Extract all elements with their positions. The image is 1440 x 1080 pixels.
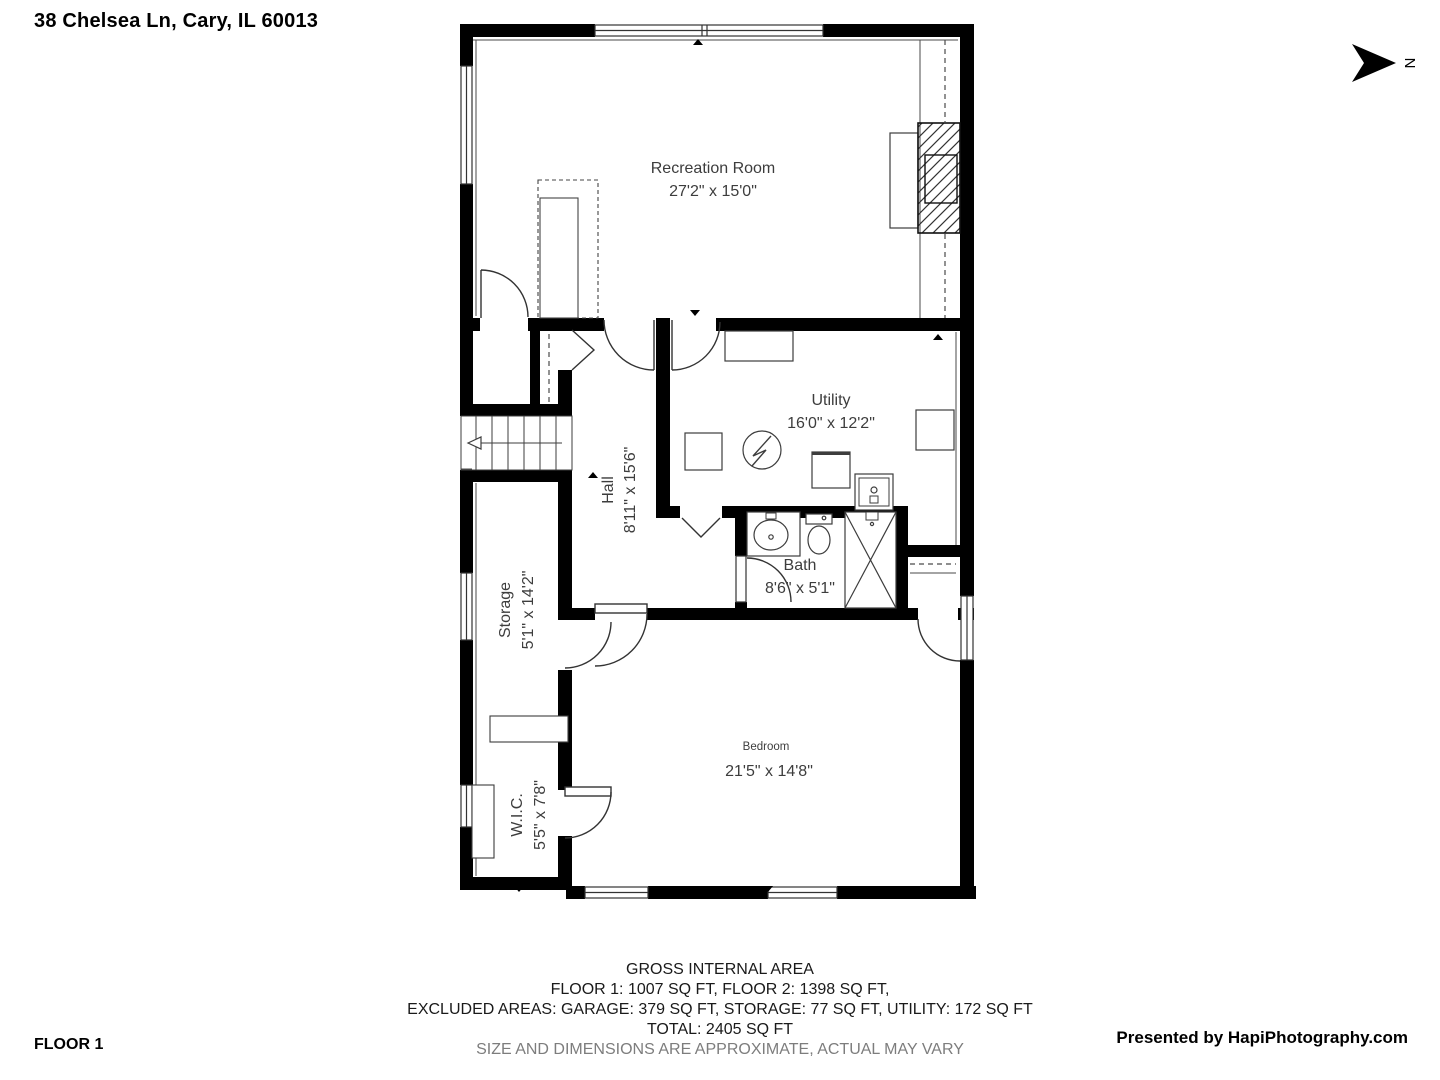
storage-shelf xyxy=(490,716,568,742)
water-heater-icon xyxy=(743,431,781,469)
freezer xyxy=(916,410,954,450)
floorplan-page: { "header": { "address": "38 Chelsea Ln,… xyxy=(0,0,1440,1080)
storage-label: Storage xyxy=(497,582,514,638)
utility-label: Utility xyxy=(811,392,850,409)
fireplace xyxy=(890,123,960,233)
laundry-sink-icon xyxy=(855,474,893,510)
wic-dims: 5'5" x 7'8" xyxy=(532,780,549,850)
toilet-icon xyxy=(806,514,832,554)
excluded-areas: EXCLUDED AREAS: GARAGE: 379 SQ FT, STORA… xyxy=(0,1000,1440,1020)
recreation-room-label: Recreation Room xyxy=(651,160,776,177)
floorplan-svg: Recreation Room 27'2" x 15'0" Utility 16… xyxy=(0,0,1440,1080)
sink-vanity-icon xyxy=(747,512,800,556)
stairs xyxy=(461,416,572,470)
washer-icon xyxy=(812,452,850,488)
shower-icon xyxy=(845,512,896,608)
counter xyxy=(725,331,793,361)
bedroom-label: Bedroom xyxy=(743,741,790,753)
hall-dims: 8'11" x 15'6" xyxy=(622,447,639,534)
utility-dims: 16'0" x 12'2" xyxy=(787,415,875,432)
storage-dims: 5'1" x 14'2" xyxy=(520,571,537,650)
gross-area-title: GROSS INTERNAL AREA xyxy=(0,960,1440,980)
bedroom-dims: 21'5" x 14'8" xyxy=(725,763,813,780)
recreation-room-dims: 27'2" x 15'0" xyxy=(669,183,757,200)
wic-label: W.I.C. xyxy=(509,793,526,837)
wic-shelf xyxy=(472,785,494,858)
rec-room-equipment xyxy=(538,180,598,318)
bath-dims: 8'6" x 5'1" xyxy=(765,580,835,597)
floors-areas: FLOOR 1: 1007 SQ FT, FLOOR 2: 1398 SQ FT… xyxy=(0,980,1440,1000)
north-arrow-icon: N xyxy=(1352,44,1418,82)
north-label: N xyxy=(1401,58,1418,69)
hall-label: Hall xyxy=(600,476,617,504)
photography-credit: Presented by HapiPhotography.com xyxy=(1116,1028,1408,1048)
floor-label: FLOOR 1 xyxy=(34,1036,103,1054)
bath-label: Bath xyxy=(784,557,817,574)
appliance xyxy=(685,433,722,470)
